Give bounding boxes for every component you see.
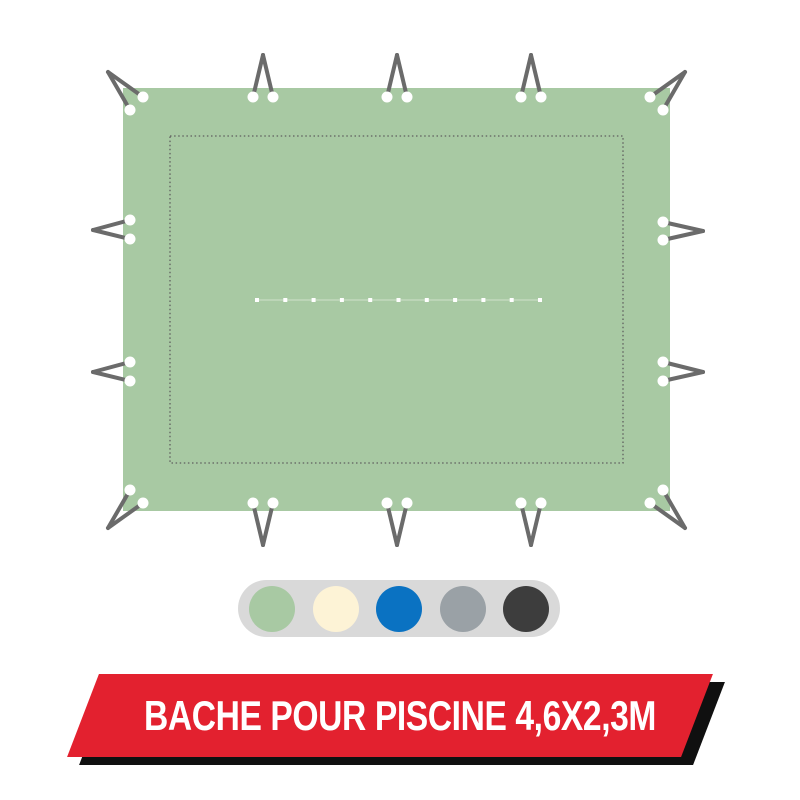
color-swatch-blue[interactable] bbox=[376, 586, 422, 632]
eyelet bbox=[125, 215, 136, 226]
color-swatch-gray[interactable] bbox=[440, 586, 486, 632]
color-swatch-green[interactable] bbox=[249, 586, 295, 632]
eyelet bbox=[516, 498, 527, 509]
eyelet bbox=[248, 92, 259, 103]
color-swatch-bar bbox=[238, 580, 560, 637]
color-swatch-cream[interactable] bbox=[313, 586, 359, 632]
product-image: BACHE POUR PISCINE 4,6X2,3M bbox=[0, 0, 800, 800]
eyelet bbox=[658, 376, 669, 387]
banner: BACHE POUR PISCINE 4,6X2,3M bbox=[100, 674, 700, 757]
eyelet bbox=[658, 485, 669, 496]
pool-cover-illustration bbox=[0, 0, 800, 590]
eyelet bbox=[658, 357, 669, 368]
eyelet bbox=[658, 217, 669, 228]
eyelet bbox=[658, 105, 669, 116]
eyelet bbox=[536, 92, 547, 103]
eyelet bbox=[125, 376, 136, 387]
eyelet bbox=[268, 92, 279, 103]
eyelet bbox=[125, 357, 136, 368]
eyelet bbox=[402, 498, 413, 509]
eyelet bbox=[516, 92, 527, 103]
eyelet bbox=[125, 105, 136, 116]
banner-title: BACHE POUR PISCINE 4,6X2,3M bbox=[144, 692, 656, 740]
eyelet bbox=[125, 234, 136, 245]
eyelet bbox=[382, 498, 393, 509]
eyelet bbox=[382, 92, 393, 103]
eyelet bbox=[138, 498, 149, 509]
eyelet bbox=[645, 498, 656, 509]
eyelet bbox=[645, 92, 656, 103]
eyelet bbox=[125, 485, 136, 496]
eyelet bbox=[658, 235, 669, 246]
eyelet bbox=[536, 498, 547, 509]
eyelet bbox=[248, 498, 259, 509]
eyelet bbox=[402, 92, 413, 103]
eyelet bbox=[138, 92, 149, 103]
eyelet bbox=[268, 498, 279, 509]
color-swatch-charcoal[interactable] bbox=[503, 586, 549, 632]
